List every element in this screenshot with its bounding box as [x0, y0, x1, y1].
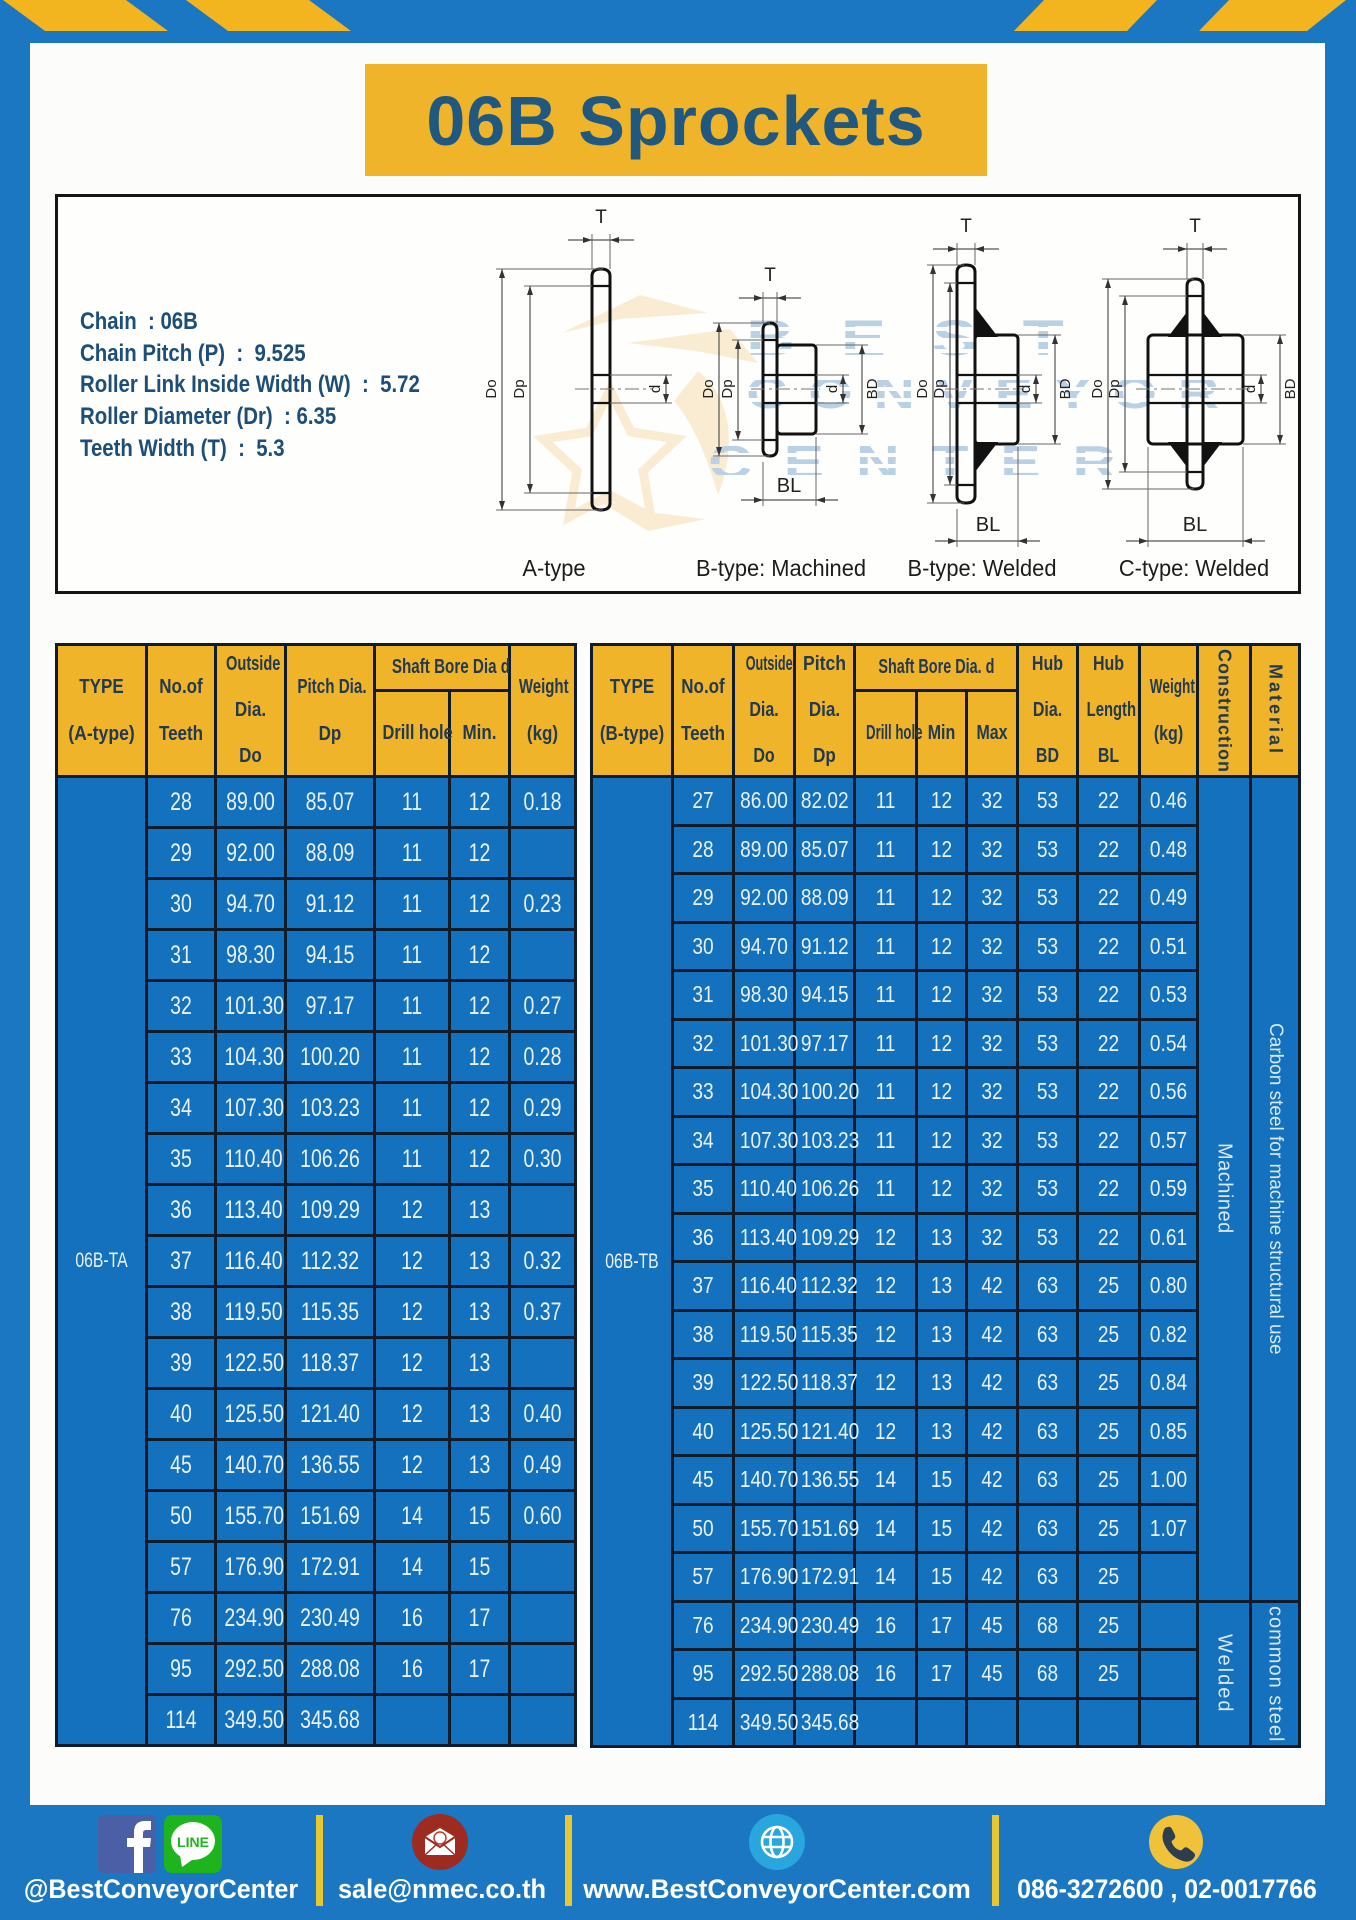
svg-text:d: d — [1242, 385, 1259, 393]
svg-text:LINE: LINE — [177, 1834, 209, 1850]
svg-text:BD: BD — [1057, 378, 1074, 399]
svg-text:BD: BD — [1282, 378, 1298, 399]
svg-text:Do: Do — [914, 379, 931, 398]
svg-text:Do: Do — [700, 379, 717, 398]
svg-text:BL: BL — [777, 475, 801, 497]
svg-text:Do: Do — [483, 379, 500, 398]
svg-text:T: T — [960, 216, 972, 237]
svg-text:T: T — [1189, 216, 1201, 237]
svg-text:T: T — [595, 207, 607, 228]
svg-text:T: T — [764, 265, 776, 286]
svg-text:Do: Do — [1089, 379, 1106, 398]
svg-text:Dp: Dp — [931, 379, 948, 398]
svg-text:d: d — [1017, 385, 1034, 393]
svg-text:d: d — [647, 385, 664, 393]
svg-text:Dp: Dp — [719, 379, 736, 398]
svg-text:Dp: Dp — [511, 379, 528, 398]
svg-text:BL: BL — [1183, 514, 1207, 536]
svg-text:Dp: Dp — [1106, 379, 1123, 398]
svg-text:BL: BL — [976, 514, 1000, 536]
svg-text:d: d — [824, 385, 841, 393]
svg-text:BD: BD — [864, 378, 881, 399]
